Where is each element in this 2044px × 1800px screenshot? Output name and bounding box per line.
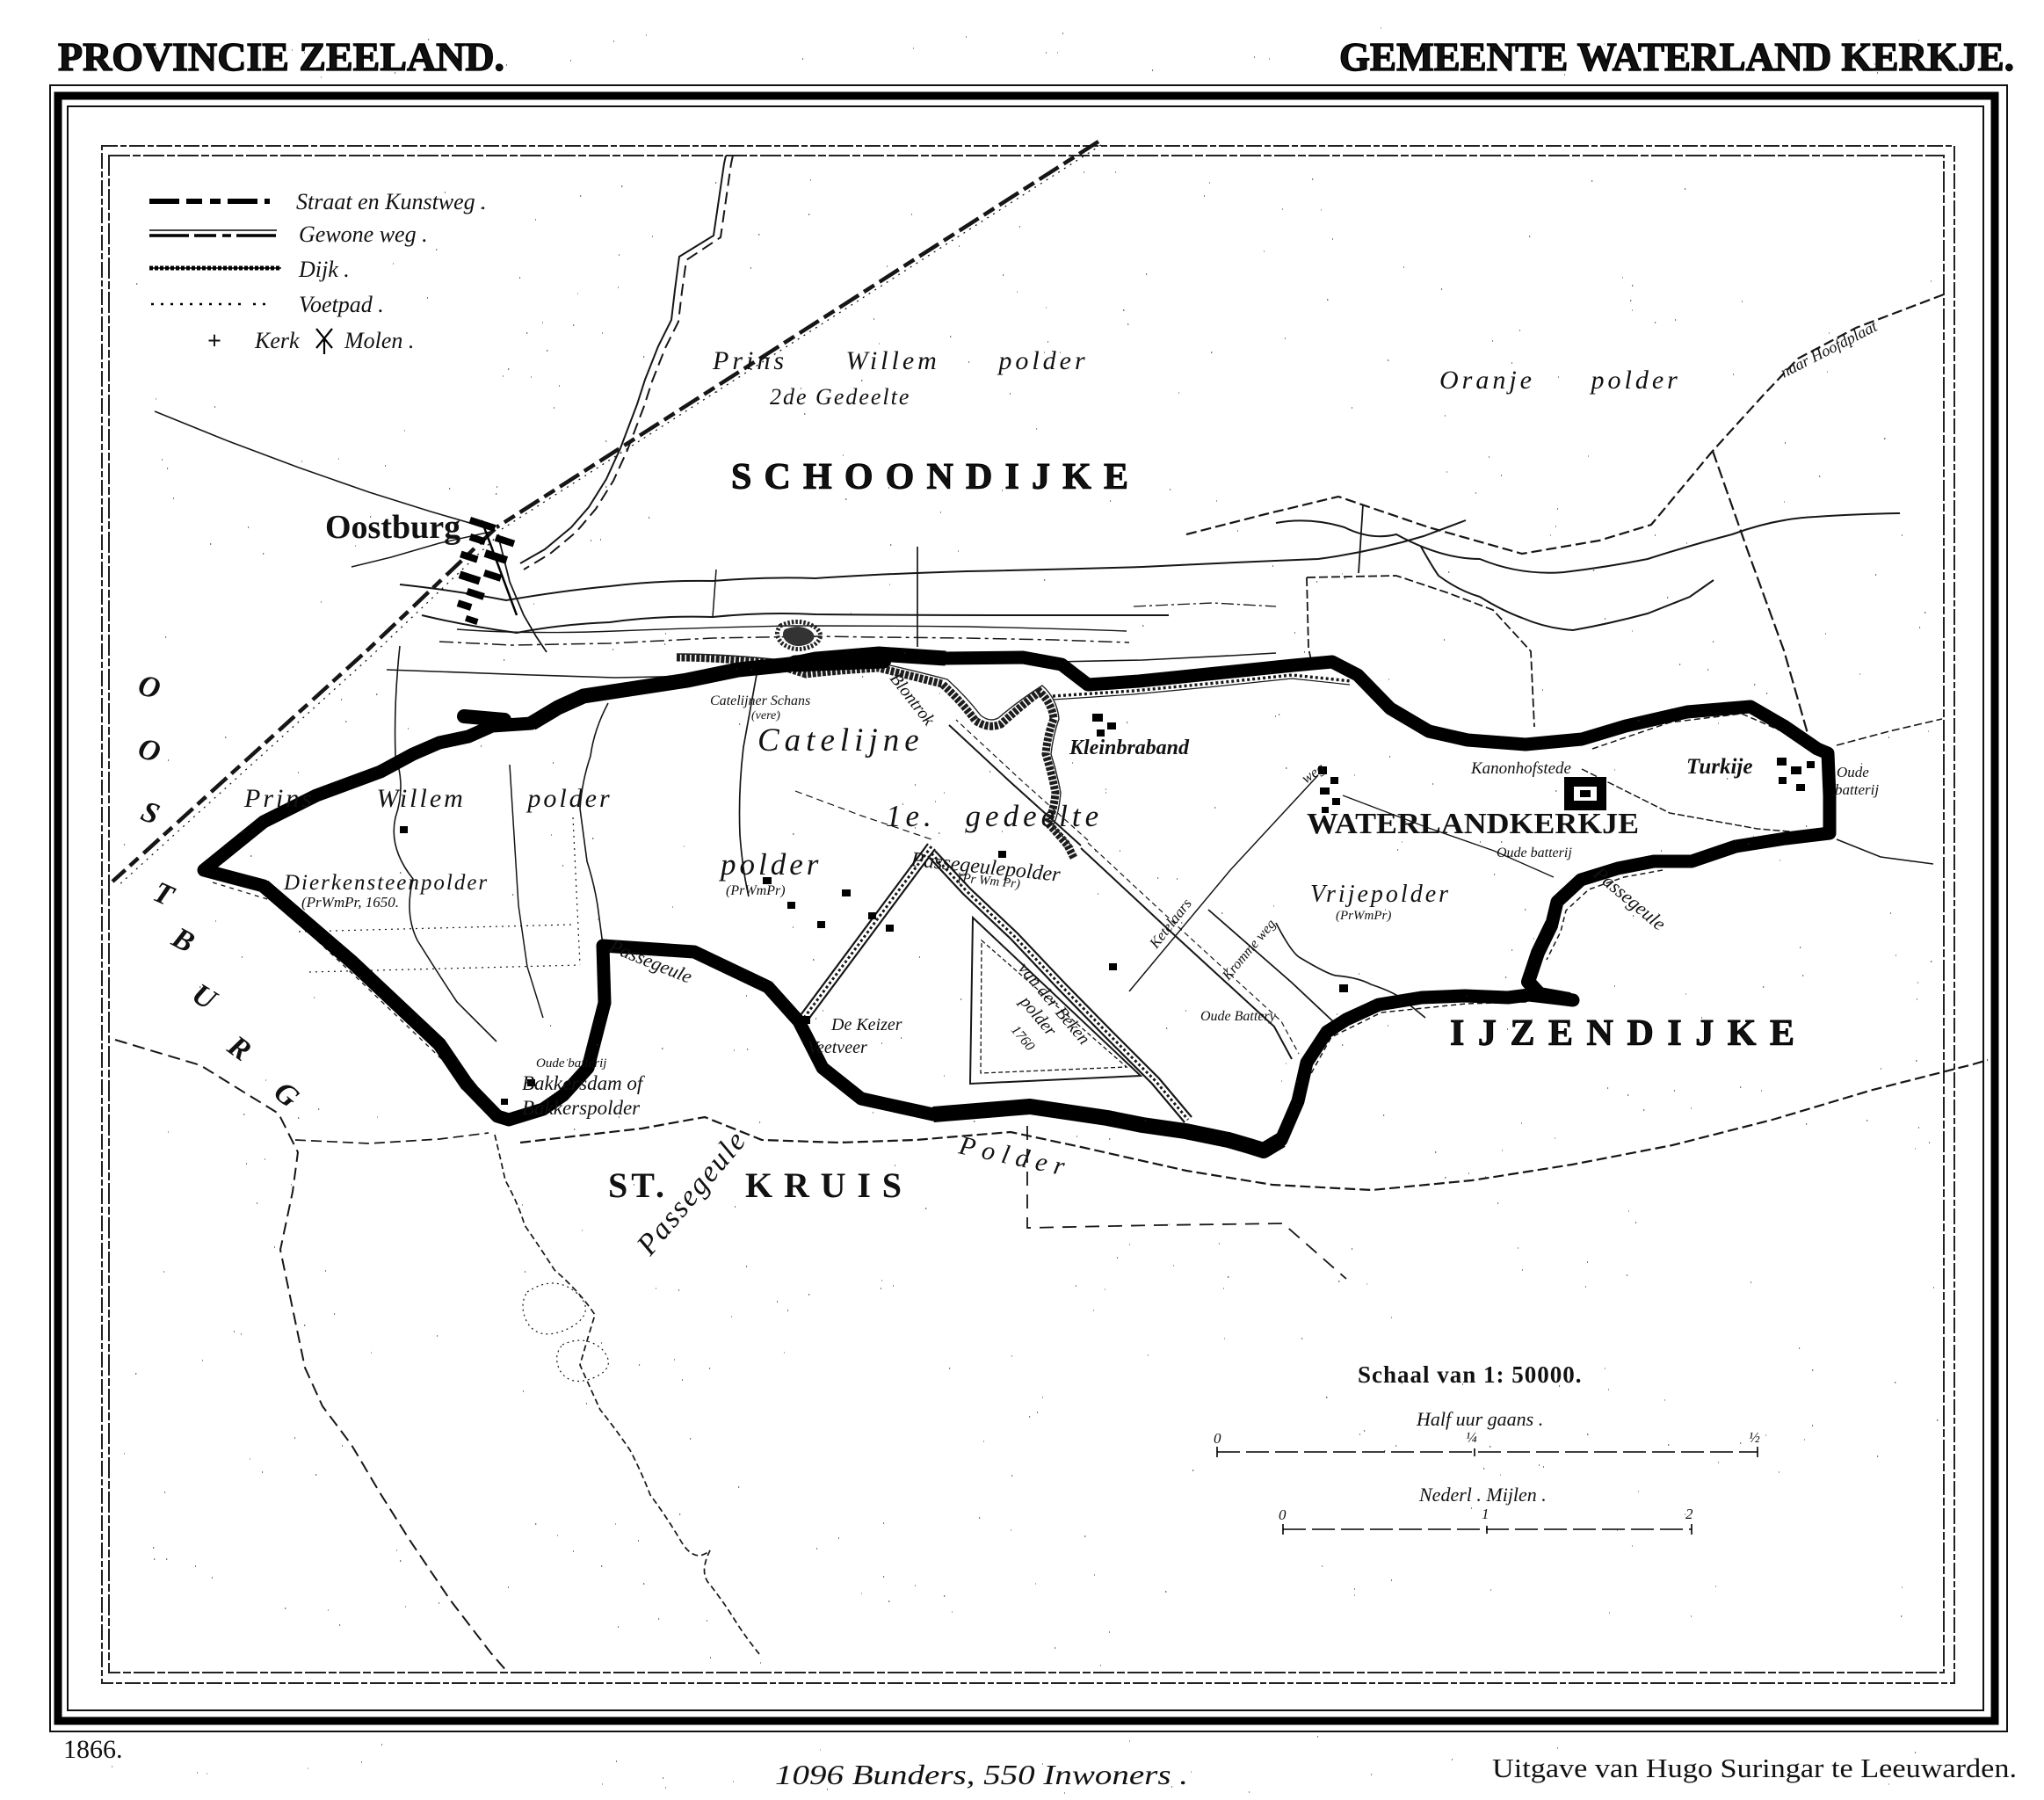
svg-text:Nederl . Mijlen .: Nederl . Mijlen .	[1418, 1484, 1547, 1506]
svg-text:1e. gedeelte: 1e. gedeelte	[886, 799, 1103, 833]
svg-text:Gewone weg .: Gewone weg .	[299, 221, 428, 247]
svg-text:PROVINCIE ZEELAND.: PROVINCIE ZEELAND.	[58, 34, 504, 79]
svg-text:Kanonhofstede: Kanonhofstede	[1470, 759, 1571, 778]
svg-text:Dierkensteenpolder: Dierkensteenpolder	[283, 871, 489, 895]
svg-text:Oude Battery: Oude Battery	[1200, 1009, 1277, 1024]
svg-text:Kerk: Kerk	[254, 328, 300, 353]
svg-text:De Keizer: De Keizer	[830, 1015, 902, 1034]
svg-text:(PrWmPr, 1650.: (PrWmPr, 1650.	[301, 894, 399, 911]
svg-text:0: 0	[1279, 1506, 1287, 1523]
svg-text:Uitgave van Hugo Suringar te L: Uitgave van Hugo Suringar te Leeuwarden.	[1492, 1753, 2017, 1783]
svg-text:(PrWmPr): (PrWmPr)	[1336, 909, 1391, 923]
svg-text:0: 0	[1214, 1430, 1221, 1447]
svg-text:SCHOONDIJKE: SCHOONDIJKE	[731, 457, 1144, 497]
svg-text:Vrijepolder: Vrijepolder	[1310, 881, 1451, 908]
svg-text:Prins Willem polder: Prins Willem polder	[243, 784, 612, 813]
svg-text:Oude: Oude	[1837, 764, 1869, 780]
svg-text:Oostburg: Oostburg	[325, 509, 460, 546]
svg-text:IJZENDIJKE: IJZENDIJKE	[1450, 1013, 1810, 1054]
svg-text:Dijk .: Dijk .	[298, 257, 350, 282]
svg-text:Molen .: Molen .	[344, 328, 414, 353]
svg-text:KRUIS: KRUIS	[745, 1165, 914, 1205]
svg-text:Straat en Kunstweg .: Straat en Kunstweg .	[296, 189, 487, 214]
svg-text:Catelijner Schans: Catelijner Schans	[710, 693, 810, 708]
svg-text:1: 1	[1482, 1506, 1490, 1522]
svg-text:1096 Bunders, 550 Inwoners .: 1096 Bunders, 550 Inwoners .	[775, 1759, 1188, 1790]
svg-text:Veetveer: Veetveer	[808, 1038, 867, 1057]
svg-text:2: 2	[1685, 1506, 1693, 1522]
svg-text:Oranje polder: Oranje polder	[1439, 366, 1681, 395]
svg-text:batterij: batterij	[1835, 781, 1879, 798]
svg-text:+: +	[207, 328, 221, 355]
svg-text:polder: polder	[718, 847, 822, 882]
svg-text:Turkije: Turkije	[1686, 755, 1752, 779]
svg-text:½: ½	[1749, 1429, 1760, 1446]
svg-text:Oude batterij: Oude batterij	[1497, 846, 1572, 860]
svg-text:GEMEENTE WATERLAND KERKJE.: GEMEENTE WATERLAND KERKJE.	[1339, 34, 2014, 79]
svg-text:Schaal van 1: 50000.: Schaal van 1: 50000.	[1358, 1361, 1583, 1388]
svg-text:Prins Willem polder: Prins Willem polder	[712, 346, 1089, 375]
svg-text:(PrWmPr): (PrWmPr)	[726, 883, 786, 898]
svg-text:(vere): (vere)	[751, 709, 780, 722]
svg-text:Bakkerspolder: Bakkerspolder	[522, 1097, 641, 1119]
svg-text:ST.: ST.	[608, 1165, 668, 1205]
svg-text:Oude batterij: Oude batterij	[536, 1056, 606, 1071]
svg-text:Bakkersdam of: Bakkersdam of	[522, 1072, 646, 1094]
svg-text:Kleinbraband: Kleinbraband	[1069, 737, 1190, 759]
svg-text:¼: ¼	[1466, 1429, 1477, 1446]
svg-text:2de Gedeelte: 2de Gedeelte	[770, 384, 910, 410]
svg-text:WATERLANDKERKJE: WATERLANDKERKJE	[1307, 808, 1639, 840]
svg-text:Voetpad .: Voetpad .	[299, 292, 384, 317]
svg-text:Half uur gaans .: Half uur gaans .	[1416, 1408, 1543, 1430]
svg-text:Catelijne: Catelijne	[757, 722, 924, 758]
svg-text:1866.: 1866.	[63, 1735, 123, 1764]
